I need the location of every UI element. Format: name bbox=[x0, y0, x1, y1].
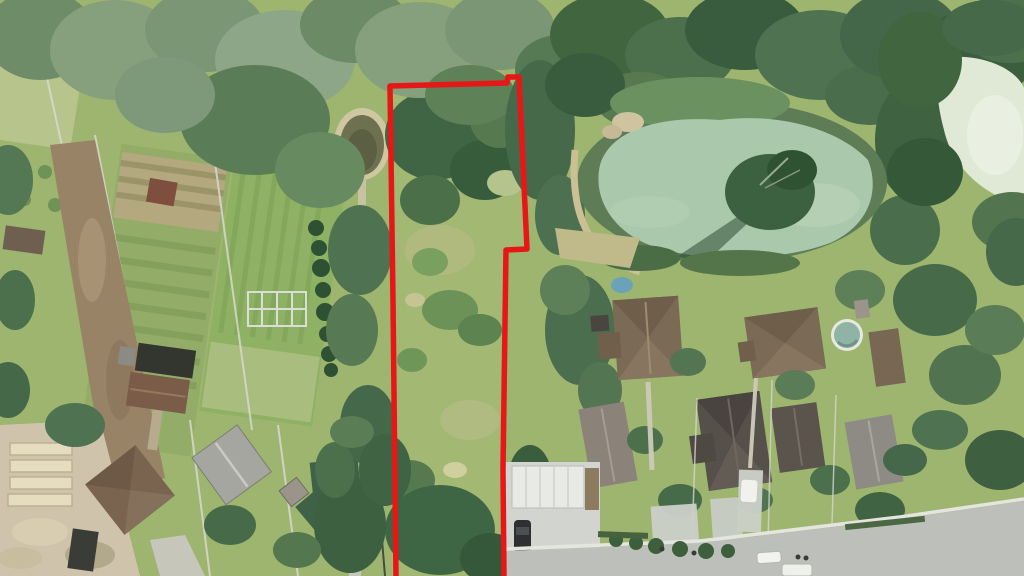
round-pool bbox=[831, 319, 863, 351]
aerial-photo-canvas bbox=[0, 0, 1024, 576]
kiddie-pool bbox=[611, 277, 633, 293]
aerial-photo bbox=[0, 0, 1024, 576]
white-roof-building bbox=[512, 466, 584, 508]
